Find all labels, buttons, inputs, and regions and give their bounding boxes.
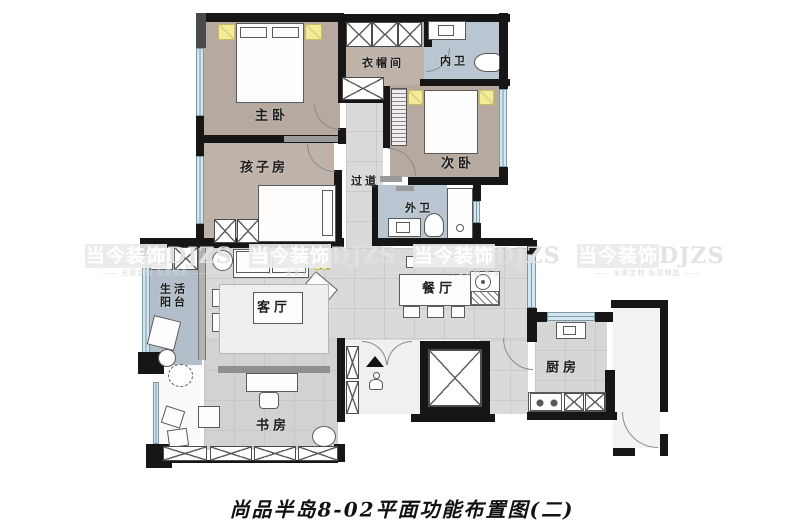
- balcony-sliding-door: [198, 248, 206, 360]
- room-label-master-bedroom: 主卧: [255, 110, 289, 125]
- bath-sink-basin: [438, 25, 454, 36]
- bay-window-seat: [298, 446, 338, 461]
- closet: [398, 22, 422, 47]
- washing-machine: [174, 247, 198, 270]
- watermark-brand: 当今装饰: [577, 244, 659, 268]
- room-label-hallway: 过道: [351, 176, 379, 189]
- balcony-label-line1: 生活: [160, 283, 188, 296]
- wall-segment: [660, 300, 668, 412]
- room-label-kids-room: 孩子房: [240, 162, 288, 177]
- island-cabinet: [471, 291, 499, 305]
- wall-segment: [338, 128, 346, 144]
- nightstand-lamp: [408, 90, 423, 105]
- room-label-outer-bath: 外卫: [405, 203, 433, 216]
- wall-segment: [372, 238, 483, 246]
- wall-segment: [383, 86, 390, 148]
- nightstand-lamp: [479, 90, 494, 105]
- elevator: [428, 349, 482, 407]
- wall-segment: [613, 448, 635, 456]
- toilet-icon: [424, 213, 444, 237]
- watermark-slogan: —— 全案定制 私享臻品 ——: [577, 269, 717, 278]
- wall-segment: [473, 185, 481, 201]
- wall-segment: [527, 308, 537, 342]
- sliding-door: [380, 176, 402, 182]
- door-header: [284, 136, 340, 142]
- stove-icon: [530, 393, 562, 411]
- bay-window-seat: [254, 446, 296, 461]
- tv-console: [218, 366, 330, 373]
- room-label-kitchen: 厨房: [546, 362, 580, 377]
- shoe-cabinet: [346, 346, 359, 379]
- room-label-inner-bath: 内卫: [440, 56, 468, 69]
- plan-caption: 尚品半岛8-02平面功能布置图(二): [230, 494, 575, 523]
- wall-segment: [337, 338, 345, 422]
- balcony-label-line2: 阳台: [160, 296, 188, 309]
- room-label-second-bedroom: 次卧: [441, 158, 475, 173]
- kids-wardrobe: [237, 219, 259, 243]
- person-body: [369, 379, 383, 390]
- window: [196, 156, 204, 224]
- second-bed: [424, 90, 478, 154]
- kids-wardrobe: [214, 219, 236, 243]
- stool: [198, 406, 220, 428]
- watermark-abbr: DJZS: [659, 244, 724, 268]
- bay-window-seat: [163, 446, 207, 461]
- wall-segment: [499, 13, 508, 89]
- window: [499, 89, 507, 167]
- room-label-service-balcony: 生活 阳台: [160, 283, 188, 308]
- nightstand-lamp: [305, 24, 322, 40]
- window: [473, 201, 480, 223]
- closet: [372, 22, 398, 47]
- room-label-living-room: 客厅: [257, 302, 291, 317]
- shower-stall: [447, 188, 473, 240]
- floor-lamp: [212, 250, 233, 271]
- bed-pillow: [272, 27, 299, 38]
- person-head: [373, 372, 380, 379]
- floor-plan: 主卧 孩子房 衣帽间 内卫 次卧 过道 外卫 生活 阳台 客厅 餐厅 厨房 书房…: [0, 0, 805, 531]
- laundry-sink-basin: [155, 252, 167, 264]
- wall-segment: [408, 177, 508, 185]
- entry-person-icon: [366, 372, 386, 394]
- wall-segment: [527, 412, 617, 420]
- wall-segment: [196, 13, 206, 48]
- sideboard: [406, 256, 468, 268]
- window: [547, 312, 595, 321]
- toilet-icon: [474, 53, 500, 72]
- wall-segment: [481, 238, 533, 246]
- room-label-dining-room: 餐厅: [422, 283, 456, 298]
- desk-chair: [259, 392, 279, 409]
- side-table: [314, 250, 330, 270]
- wall-segment: [595, 312, 613, 322]
- room-label-study: 书房: [256, 420, 290, 435]
- plant-icon: [168, 364, 193, 387]
- wall-segment: [196, 13, 344, 22]
- island-burner-dot: [481, 280, 485, 284]
- window: [153, 382, 159, 444]
- dining-chair: [427, 306, 444, 318]
- room-label-cloakroom: 衣帽间: [362, 58, 404, 71]
- watermark: 当今装饰 DJZS —— 全案定制 私享臻品 ——: [577, 244, 727, 278]
- wardrobe-rails: [391, 88, 407, 146]
- wall-segment: [473, 223, 481, 246]
- wall-segment: [372, 185, 378, 240]
- window: [196, 48, 204, 116]
- ceiling-fan-icon: [312, 426, 336, 447]
- sofa-back: [236, 251, 270, 273]
- dining-chair: [451, 306, 465, 318]
- window: [527, 254, 536, 308]
- bed-pillow: [322, 190, 333, 236]
- bay-window-seat: [210, 446, 252, 461]
- dining-chair: [403, 306, 420, 318]
- closet: [346, 22, 372, 47]
- wall-segment: [527, 240, 537, 254]
- entry-direction-arrow-icon: [366, 356, 384, 367]
- bed-pillow: [240, 27, 267, 38]
- closet: [342, 77, 384, 100]
- sliding-door: [396, 186, 414, 191]
- wall-segment: [420, 79, 510, 86]
- shower-drain-icon: [456, 224, 464, 232]
- wall-segment: [537, 312, 547, 322]
- nightstand-lamp: [218, 24, 235, 40]
- bath-sink-basin: [396, 222, 410, 233]
- kitchen-cabinet: [564, 393, 584, 411]
- wall-segment: [605, 370, 615, 414]
- balcony-table: [158, 349, 176, 367]
- study-desk: [246, 373, 298, 392]
- sofa-back: [272, 251, 306, 273]
- wall-segment: [660, 434, 668, 456]
- shoe-cabinet: [346, 381, 359, 414]
- kitchen-sink-basin: [563, 326, 576, 335]
- wall-segment: [411, 414, 495, 422]
- wall-segment: [499, 167, 508, 185]
- kitchen-cabinet: [585, 393, 605, 411]
